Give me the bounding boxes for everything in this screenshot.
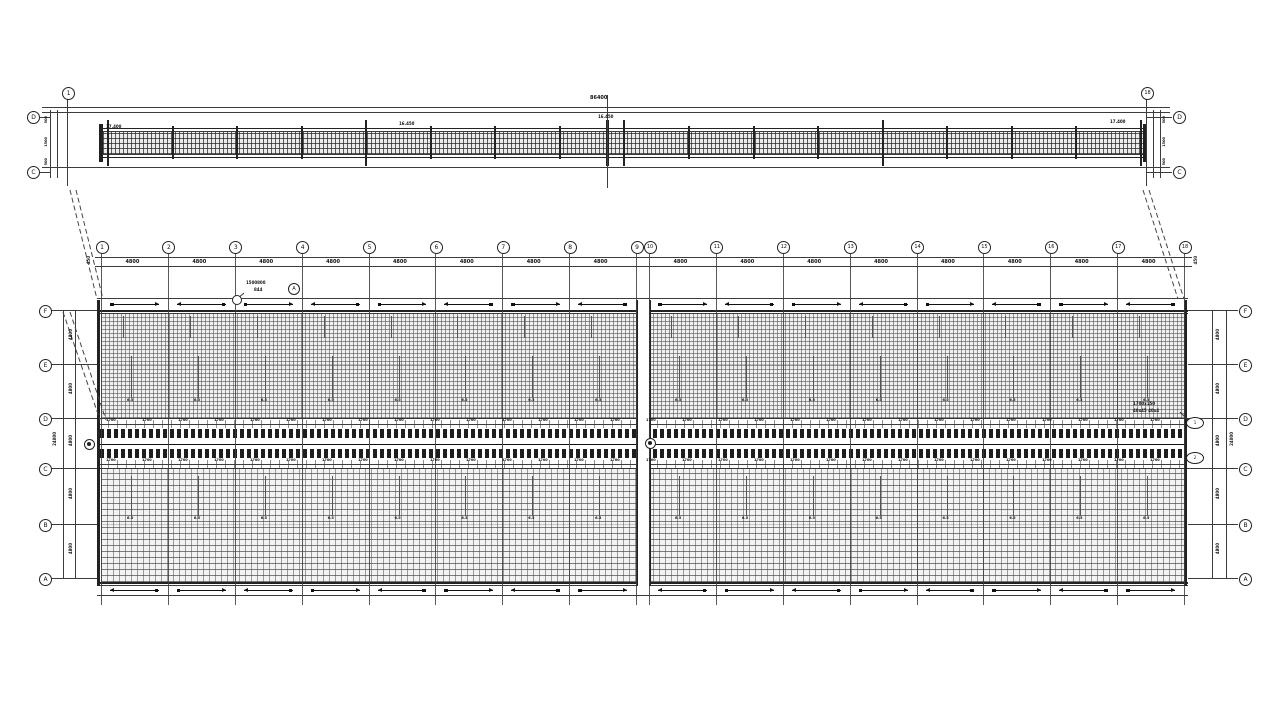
row-dim-tick-right (1209, 468, 1229, 469)
row-bubble-left: E (39, 359, 52, 372)
gutter-dimension: 1700 (1078, 458, 1088, 462)
purlin-stem-long (1013, 356, 1014, 398)
arrow-tail-square (177, 589, 181, 593)
arrow-tail-square (859, 589, 863, 593)
bay-dimension: 4800 (1008, 259, 1022, 265)
direction-arrow-line (244, 304, 293, 305)
grid-line (1184, 254, 1185, 605)
gutter-dimension: 1700 (1006, 418, 1016, 422)
row-bubble-left: F (39, 305, 52, 318)
gutter-dimension: 1700 (178, 418, 188, 422)
purlin-stem-lower (465, 476, 466, 516)
gutter-dimension: 1700 (970, 458, 980, 462)
strip-post (623, 120, 625, 166)
direction-arrow-line (311, 590, 360, 591)
purlin-stem-lower (265, 476, 266, 516)
direction-arrow-line (578, 590, 627, 591)
strip-side-dim: 500 (44, 158, 48, 165)
purlin-stem-long (880, 356, 881, 398)
grid-bubble: 14 (911, 241, 924, 254)
row-dimension: 4800 (1215, 435, 1220, 446)
strip-post (236, 126, 238, 159)
grid-line (1117, 254, 1118, 605)
gutter-dimension: 1700 (250, 458, 260, 462)
purlin-stem-short (391, 316, 392, 338)
row-total-left: 24000 (52, 432, 57, 446)
arrow-head-left (177, 302, 181, 306)
purlin-stem-lower (813, 476, 814, 516)
gutter-dimension: 1700 (1042, 418, 1052, 422)
purlin-stem-long (679, 356, 680, 398)
gutter-dimension: 1700 (1042, 458, 1052, 462)
gutter-dimension: 1700 (1006, 458, 1016, 462)
purlin-stem-lower (746, 476, 747, 516)
row-bubble-left: D (39, 413, 52, 426)
bay-dimension: 4800 (527, 259, 541, 265)
arrow-head-left (992, 302, 996, 306)
direction-arrow-line (177, 304, 226, 305)
stem-label: 6.5 (528, 398, 534, 402)
purlin-stem-long (532, 356, 533, 398)
purlin-stem-short (123, 316, 124, 338)
gutter-dimension: 1700 (106, 418, 116, 422)
grid-line (649, 254, 650, 605)
row-bubble-left: A (39, 573, 52, 586)
direction-arrow-line (511, 304, 560, 305)
grid-line (235, 254, 236, 605)
purlin-stem-short (1005, 316, 1006, 338)
gutter-dimension: 1700 (574, 418, 584, 422)
purlin-stem-short (190, 316, 191, 338)
stem-label: 6.5 (395, 398, 401, 402)
purlin-stem-long (746, 356, 747, 398)
grid-line (1050, 254, 1051, 605)
purlin-stem-short (1139, 316, 1140, 338)
gutter-dimension: 1700 (466, 418, 476, 422)
row-dim-tick-left (60, 468, 78, 469)
stem-label: 6.5 (127, 516, 133, 520)
stem-label: 6.5 (595, 398, 601, 402)
detail-ref-ellipse-bottom: 2 (1186, 452, 1204, 464)
grid-bubble: 4 (296, 241, 309, 254)
stem-label: 6.5 (1143, 516, 1149, 520)
strip-row-tick-left (39, 172, 51, 173)
arrow-tail-square (489, 303, 493, 307)
purlin-stem-lower (399, 476, 400, 516)
stem-label: 6.5 (528, 516, 534, 520)
arrow-head-left (1059, 588, 1063, 592)
arrow-tail-square (556, 589, 560, 593)
gutter-dimension: 1700 (826, 418, 836, 422)
arrow-head-left (725, 302, 729, 306)
arrow-head-right (489, 588, 493, 592)
direction-arrow-line (177, 590, 226, 591)
row-dimension: 4800 (1215, 488, 1220, 499)
purlin-stem-short (939, 316, 940, 338)
direction-arrow-line (1059, 590, 1108, 591)
arrow-head-left (1126, 302, 1130, 306)
grid-bubble: 8 (564, 241, 577, 254)
direction-arrow-line (444, 590, 493, 591)
strip-post (494, 126, 496, 159)
grid-bubble: 12 (777, 241, 790, 254)
stem-label: 6.5 (1009, 516, 1015, 520)
row-bubble-left: B (39, 519, 52, 532)
direction-arrow-line (1059, 304, 1108, 305)
strip-post (946, 126, 948, 159)
arrow-tail-square (658, 303, 662, 307)
row-bubble-right: F (1239, 305, 1252, 318)
stem-label: 6.5 (1076, 516, 1082, 520)
arrow-head-right (1037, 588, 1041, 592)
arrow-tail-square (1104, 589, 1108, 593)
row-dim-tick-right (1209, 578, 1229, 579)
grid-line (569, 254, 570, 605)
grid-bubble: 5 (363, 241, 376, 254)
strip-row-bubble-left: D (27, 111, 40, 124)
gutter-dimension: 1700 (1114, 458, 1124, 462)
direction-arrow-line (511, 590, 560, 591)
strip-post (817, 126, 819, 159)
gutter-dimension: 1700 (322, 458, 332, 462)
row-bubble-right: C (1239, 463, 1252, 476)
row-bubble-right: D (1239, 413, 1252, 426)
purlin-stem-lower (332, 476, 333, 516)
strip-post (172, 126, 174, 159)
purlin-stem-long (465, 356, 466, 398)
arrow-head-right (1104, 302, 1108, 306)
gutter-dimension: 1700 (1150, 418, 1160, 422)
gutter-dimension: 1700 (754, 418, 764, 422)
grid-line (917, 254, 918, 605)
arrow-tail-square (289, 589, 293, 593)
direction-arrow-line (926, 304, 975, 305)
arrow-tail-square (725, 589, 729, 593)
gutter-dimension: 1700 (322, 418, 332, 422)
arrow-head-right (970, 302, 974, 306)
arrow-head-right (222, 588, 226, 592)
row-bubble-right: B (1239, 519, 1252, 532)
arrow-tail-square (926, 303, 930, 307)
strip-post (753, 126, 755, 159)
grid-line (435, 254, 436, 605)
purlin-stem-short (872, 316, 873, 338)
strip-post (365, 120, 367, 166)
gutter-dimension: 1700 (214, 458, 224, 462)
purlin-stem-lower (599, 476, 600, 516)
gutter-dimension: 1700 (862, 458, 872, 462)
strip-post (1011, 126, 1013, 159)
strip-post (430, 126, 432, 159)
strip-side-dim: 500 (1162, 116, 1166, 123)
direction-arrow-line (378, 304, 427, 305)
gutter-dimension: 1700 (862, 418, 872, 422)
grid-bubble: 11 (710, 241, 723, 254)
purlin-stem-short (257, 316, 258, 338)
direction-arrow-line (725, 590, 774, 591)
detail-ref-ellipse-top: 1 (1186, 417, 1204, 429)
callout-b-line2: 40x45 40x4 (1133, 408, 1159, 413)
strip-row-tick-right (1147, 172, 1172, 173)
purlin-stem-long (332, 356, 333, 398)
gutter-dimension: 1700 (358, 458, 368, 462)
gutter-dimension: 1700 (106, 458, 116, 462)
gutter-dimension: 1700 (538, 458, 548, 462)
strip-end-elevation-right: 17.400 (1110, 119, 1125, 124)
row-bubble-right: E (1239, 359, 1252, 372)
grid-line (302, 254, 303, 605)
strip-post (559, 126, 561, 159)
grid-bubble: 6 (430, 241, 443, 254)
arrow-head-right (770, 588, 774, 592)
purlin-stem-long (599, 356, 600, 398)
gutter-dimension: 1700 (286, 458, 296, 462)
strip-post (301, 126, 303, 159)
arrow-head-left (244, 588, 248, 592)
strip-elevation-label-2: 16.450 (598, 114, 613, 119)
strip-row-bubble-right: C (1173, 166, 1186, 179)
arrow-tail-square (422, 589, 426, 593)
row-dimension: 4800 (1215, 383, 1220, 394)
row-dim-tick-right (1209, 524, 1229, 525)
arrow-head-left (859, 302, 863, 306)
stem-label: 6.5 (261, 398, 267, 402)
gutter-dimension: 1700 (502, 418, 512, 422)
arrow-tail-square (1059, 303, 1063, 307)
gutter-dimension: 1700 (898, 458, 908, 462)
gutter-dimension: 1700 (1150, 458, 1160, 462)
gutter-dimension: 1700 (646, 418, 656, 422)
grid-bubble: 17 (1112, 241, 1125, 254)
callout-a-line2: 844 (254, 287, 262, 292)
bay-dimension: 4800 (460, 259, 474, 265)
purlin-stem-lower (679, 476, 680, 516)
stem-label: 6.5 (461, 398, 467, 402)
row-dimension: 4800 (68, 435, 73, 446)
gutter-dimension: 1700 (178, 458, 188, 462)
bay-dimension: 4800 (740, 259, 754, 265)
strip-row-bubble-left: C (27, 166, 40, 179)
row-dimension: 4800 (68, 383, 73, 394)
arrow-head-left (444, 302, 448, 306)
grid-bubble: 1 (96, 241, 109, 254)
bay-dimension: 4800 (259, 259, 273, 265)
row-dim-tick-left (60, 364, 78, 365)
purlin-stem-short (591, 316, 592, 338)
stem-label: 6.5 (1009, 398, 1015, 402)
strip-side-dim: 500 (1162, 158, 1166, 165)
row-dimension: 4800 (68, 329, 73, 340)
callout-a-target-marker (232, 295, 242, 305)
arrow-tail-square (244, 303, 248, 307)
bay-dimension: 4800 (807, 259, 821, 265)
direction-arrow-line (725, 304, 774, 305)
grid-bubble: 15 (978, 241, 991, 254)
arrow-head-left (110, 588, 114, 592)
arrow-tail-square (623, 303, 627, 307)
arrow-head-right (623, 588, 627, 592)
arrow-tail-square (578, 589, 582, 593)
bay-dimension: 4800 (673, 259, 687, 265)
stem-label: 6.5 (675, 398, 681, 402)
strip-side-dim: 500 (44, 116, 48, 123)
stem-label: 6.5 (943, 516, 949, 520)
row-dim-tick-left (60, 578, 78, 579)
strip-row-tick-right (1147, 117, 1172, 118)
arrow-head-left (792, 588, 796, 592)
arrow-tail-square (1171, 303, 1175, 307)
bay-dimension: 4800 (326, 259, 340, 265)
grid-bubble: 2 (162, 241, 175, 254)
callout-a-line1: 1500800 (246, 280, 265, 285)
gutter-dimension: 1700 (754, 458, 764, 462)
grid-bubble: 7 (497, 241, 510, 254)
purlin-stem-long (1147, 356, 1148, 398)
grid-bubble-strip-left: 1 (62, 87, 75, 100)
strip-end-elevation-left: 17.400 (106, 124, 121, 129)
row-dim-tick-right (1209, 364, 1229, 365)
direction-arrow-line (110, 304, 159, 305)
direction-arrow-line (859, 590, 908, 591)
direction-arrow-line (1126, 304, 1175, 305)
stem-label: 6.5 (1076, 398, 1082, 402)
grid-bubble: 16 (1045, 241, 1058, 254)
grid-bubble: 13 (844, 241, 857, 254)
stem-label: 6.5 (742, 398, 748, 402)
gutter-dimension: 1700 (142, 418, 152, 422)
arrow-tail-square (904, 303, 908, 307)
gutter-dimension: 1700 (430, 458, 440, 462)
bay-dimension: 4800 (1075, 259, 1089, 265)
grid-bubble: 3 (229, 241, 242, 254)
row-bubble-left: C (39, 463, 52, 476)
purlin-stem-long (1080, 356, 1081, 398)
purlin-stem-lower (198, 476, 199, 516)
grid-bubble: 10 (644, 241, 657, 254)
arrow-head-left (311, 302, 315, 306)
stem-label: 6.5 (742, 516, 748, 520)
gutter-marker-center (645, 438, 656, 449)
grid-line (983, 254, 984, 605)
direction-arrow-line (444, 304, 493, 305)
gutter-dimension: 1700 (250, 418, 260, 422)
purlin-stem-short (1072, 316, 1073, 338)
arrow-tail-square (511, 303, 515, 307)
arrow-tail-square (110, 303, 114, 307)
gutter-dimension: 1700 (646, 458, 656, 462)
direction-arrow-line (244, 590, 293, 591)
purlin-stem-short (524, 316, 525, 338)
purlin-stem-long (131, 356, 132, 398)
purlin-stem-short (738, 316, 739, 338)
arrow-head-right (155, 302, 159, 306)
bay-dimension: 4800 (125, 259, 139, 265)
gutter-dimension: 1700 (430, 418, 440, 422)
gutter-dimension: 1700 (394, 418, 404, 422)
gutter-dimension: 1700 (682, 458, 692, 462)
row-dimension: 4800 (1215, 329, 1220, 340)
purlin-stem-short (324, 316, 325, 338)
direction-arrow-line (378, 590, 427, 591)
row-dimension: 4800 (68, 543, 73, 554)
purlin-stem-lower (1080, 476, 1081, 516)
arrow-tail-square (703, 589, 707, 593)
arrow-tail-square (1037, 303, 1041, 307)
arrow-head-right (703, 302, 707, 306)
arrow-tail-square (311, 589, 315, 593)
arrow-head-right (356, 588, 360, 592)
arrow-head-left (658, 588, 662, 592)
purlin-stem-lower (880, 476, 881, 516)
arrow-head-right (904, 588, 908, 592)
direction-arrow-line (658, 590, 707, 591)
gutter-dimension: 1700 (286, 418, 296, 422)
strip-post (882, 120, 884, 166)
arrow-head-right (556, 302, 560, 306)
grid-line (636, 254, 637, 605)
stem-label: 6.5 (943, 398, 949, 402)
strip-side-dim: 1500 (1162, 137, 1166, 147)
grid-bubble: 18 (1179, 241, 1192, 254)
purlin-stem-lower (1013, 476, 1014, 516)
grid-line (716, 254, 717, 605)
stem-label: 6.5 (328, 398, 334, 402)
grid-line (168, 254, 169, 605)
row-bubble-right: A (1239, 573, 1252, 586)
plan-end-dim-right: 450 (1193, 256, 1198, 264)
purlin-stem-lower (131, 476, 132, 516)
plan-end-dim-left: 450 (86, 256, 91, 264)
stem-label: 6.5 (328, 516, 334, 520)
gutter-dimension: 1700 (934, 418, 944, 422)
direction-arrow-line (311, 304, 360, 305)
callout-b-line1: 1700x150 (1133, 401, 1155, 406)
arrow-tail-square (792, 303, 796, 307)
row-dim-tick-left (60, 310, 78, 311)
gutter-dimension: 1700 (610, 418, 620, 422)
gutter-dimension: 1700 (970, 418, 980, 422)
arrow-tail-square (770, 303, 774, 307)
row-dim-tick-right (1209, 418, 1229, 419)
arrow-head-left (578, 302, 582, 306)
gutter-dimension: 1700 (502, 458, 512, 462)
bay-dimension: 4800 (393, 259, 407, 265)
arrow-tail-square (970, 589, 974, 593)
direction-arrow-line (792, 590, 841, 591)
direction-arrow-line (1126, 590, 1175, 591)
arrow-tail-square (222, 303, 226, 307)
arrow-head-right (289, 302, 293, 306)
arrow-head-right (1171, 588, 1175, 592)
row-dim-tick-left (60, 418, 78, 419)
gutter-marker-left (84, 439, 95, 450)
stem-label: 6.5 (595, 516, 601, 520)
direction-arrow-line (992, 304, 1041, 305)
arrow-head-right (422, 302, 426, 306)
stem-label: 6.5 (876, 516, 882, 520)
gutter-dimension: 1700 (142, 458, 152, 462)
direction-arrow-line (578, 304, 627, 305)
stem-label: 6.5 (194, 516, 200, 520)
stem-label: 6.5 (809, 398, 815, 402)
bay-dimension: 4800 (1142, 259, 1156, 265)
direction-arrow-line (992, 590, 1041, 591)
direction-arrow-line (926, 590, 975, 591)
arrow-head-right (837, 302, 841, 306)
grid-line (369, 254, 370, 605)
row-total-right: 24000 (1229, 432, 1234, 446)
strip-side-dim: 1500 (44, 137, 48, 147)
